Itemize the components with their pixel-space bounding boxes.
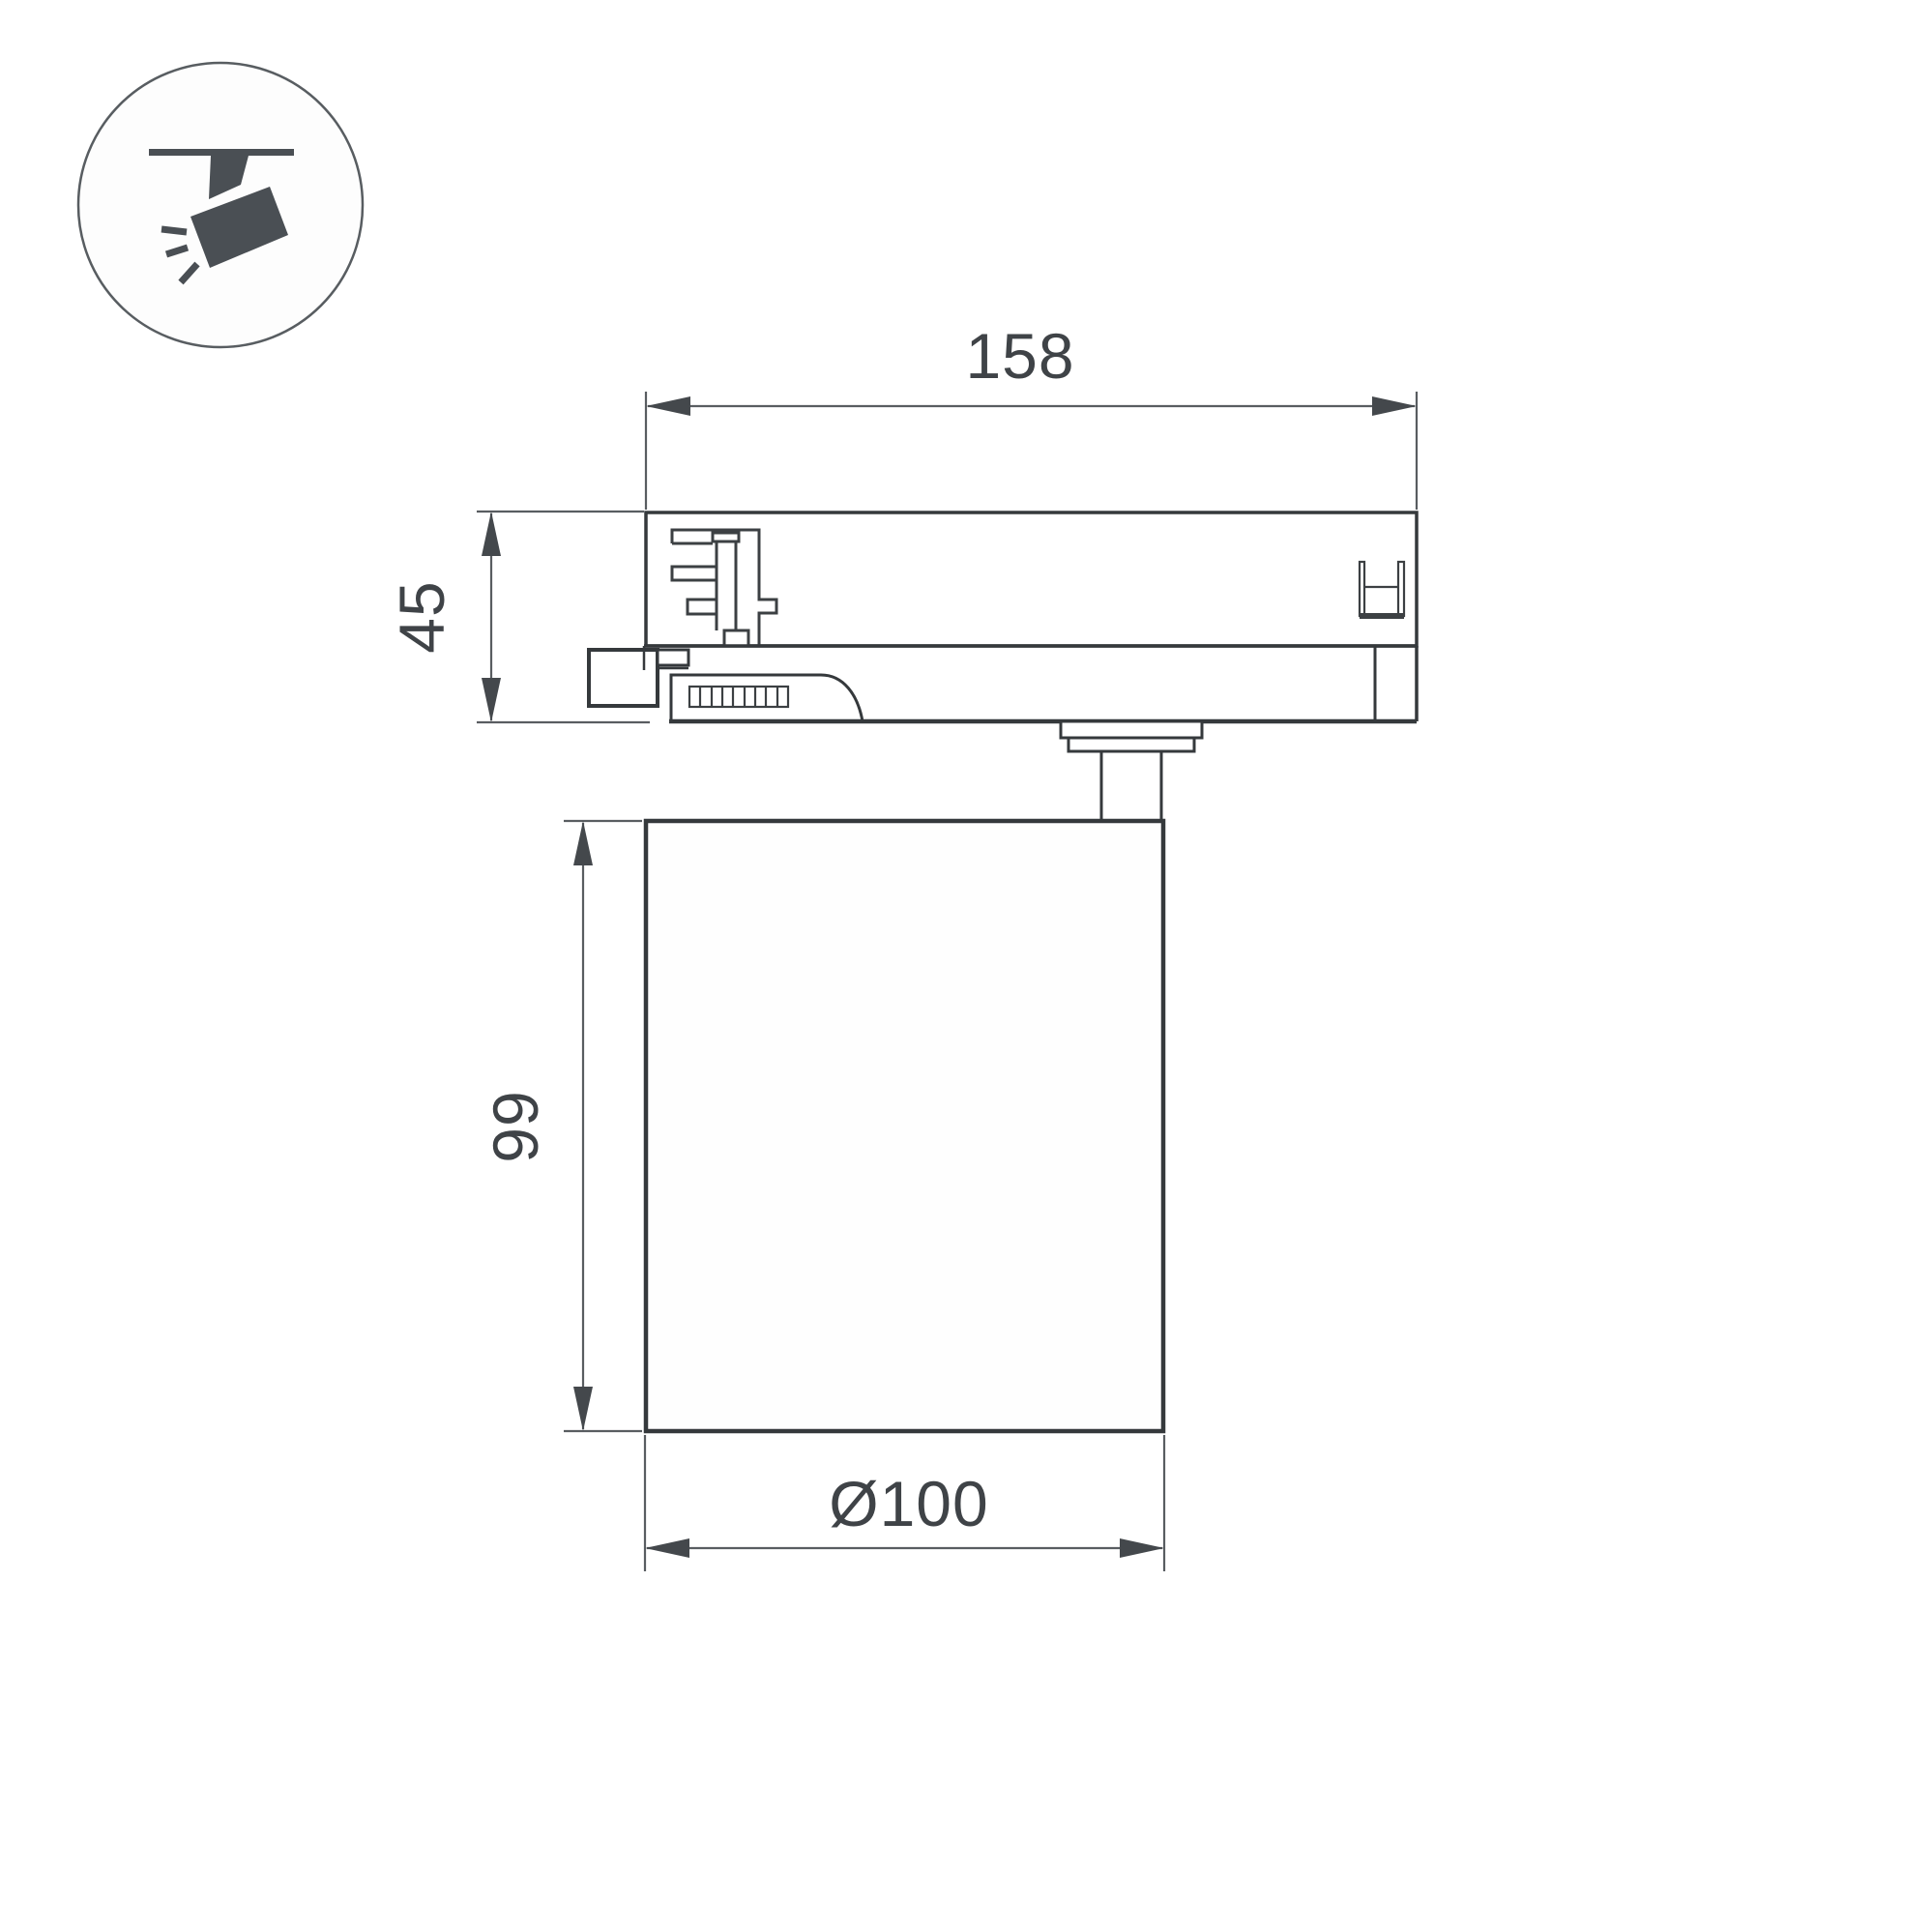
icon-circle: [78, 63, 363, 347]
dimension-adapter-height-label: 45: [386, 580, 457, 653]
adapter-latch-tab: [658, 650, 688, 665]
track-spotlight-icon: [78, 63, 363, 347]
stem-flange-lower: [1068, 738, 1194, 751]
adapter-grip-ribs: [689, 687, 788, 707]
adapter-latch-block: [589, 650, 658, 706]
technical-drawing-sheet: 158 45 99: [0, 0, 1932, 1932]
drawing-canvas: 158 45 99: [0, 0, 1932, 1932]
lamp-body: [646, 821, 1163, 1431]
dimension-width-label: 158: [965, 320, 1074, 392]
track-adapter: [589, 512, 1417, 821]
dimension-body-height: 99: [480, 821, 642, 1431]
adapter-base-band: [589, 646, 1417, 721]
dimension-body-height-label: 99: [480, 1090, 551, 1162]
swivel-stem: [1061, 721, 1202, 821]
dimension-width: 158: [646, 320, 1417, 510]
stem-flange-upper: [1061, 721, 1202, 738]
dimension-diameter: Ø100: [645, 1435, 1164, 1571]
icon-ceiling-track: [149, 149, 294, 156]
dimension-diameter-label: Ø100: [829, 1468, 988, 1539]
adapter-housing: [646, 512, 1417, 646]
